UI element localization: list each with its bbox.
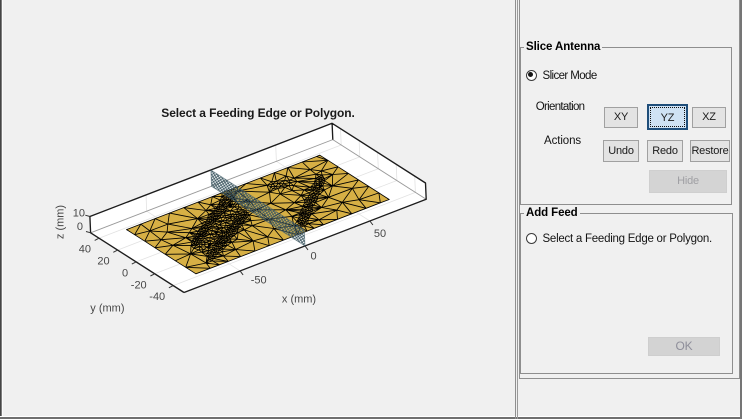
- svg-text:0: 0: [310, 251, 316, 263]
- svg-text:50: 50: [374, 228, 386, 240]
- svg-text:-40: -40: [149, 291, 165, 303]
- svg-text:Select a Feeding Edge or Polyg: Select a Feeding Edge or Polygon.: [161, 106, 354, 120]
- svg-text:40: 40: [79, 244, 91, 256]
- svg-text:20: 20: [97, 256, 109, 268]
- svg-text:0: 0: [77, 221, 83, 233]
- svg-text:0: 0: [122, 267, 128, 279]
- svg-text:z (mm): z (mm): [55, 205, 67, 239]
- svg-text:x (mm): x (mm): [282, 293, 316, 305]
- svg-text:y (mm): y (mm): [90, 302, 124, 314]
- svg-text:-50: -50: [251, 275, 267, 287]
- svg-text:-20: -20: [131, 279, 147, 291]
- svg-text:10: 10: [73, 208, 85, 220]
